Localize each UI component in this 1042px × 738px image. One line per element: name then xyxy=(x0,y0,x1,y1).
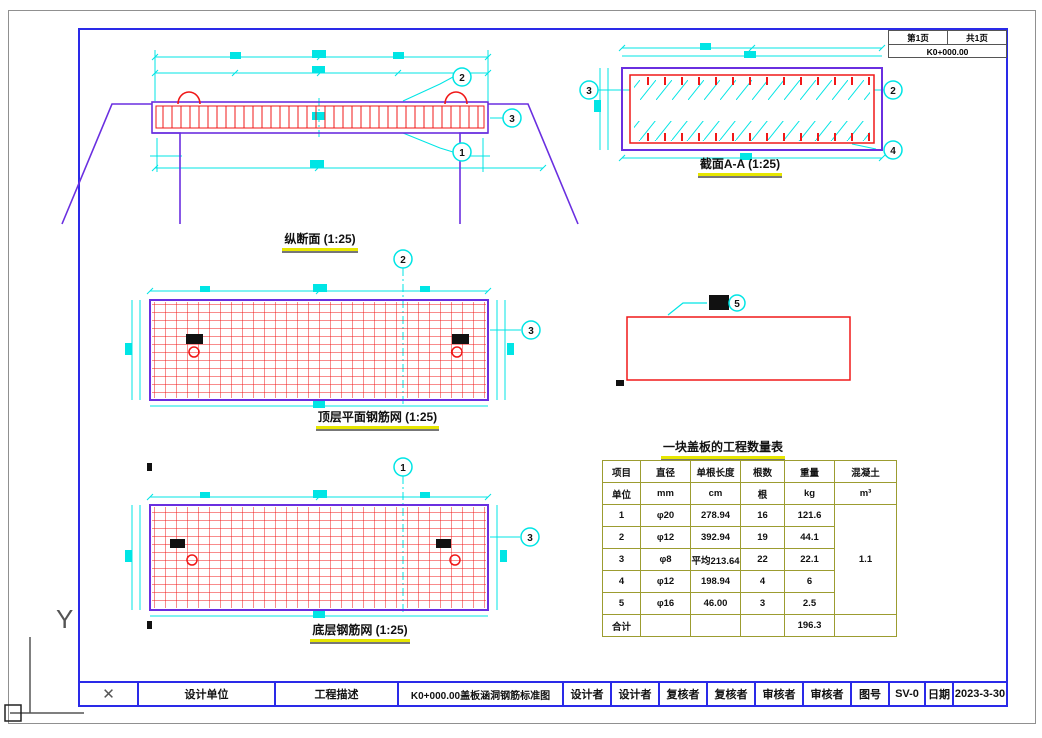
callout-2: 2 xyxy=(884,81,902,99)
qty-table-title: 一块盖板的工程数量表 xyxy=(618,438,828,459)
date-value: 2023-3-30 xyxy=(952,683,1006,705)
table-row: 合计 196.3 xyxy=(603,615,897,637)
table-row: 单位mm cm根 kgm³ xyxy=(603,483,897,505)
drawing-no-value: SV-0 xyxy=(888,683,924,705)
callout-3: 3 xyxy=(522,321,540,339)
section-view: 3 2 4 xyxy=(580,43,902,161)
svg-text:2: 2 xyxy=(459,73,465,84)
design-unit-cell: 设计单位 xyxy=(137,683,274,705)
svg-text:3: 3 xyxy=(528,326,534,337)
svg-text:2: 2 xyxy=(890,86,896,97)
title-bar: ✕ 设计单位 工程描述 K0+000.00盖板涵洞钢筋标准图 设计者 设计者 复… xyxy=(78,681,1008,707)
designer-label: 设计者 xyxy=(562,683,610,705)
bottom-mesh-view: 1 3 xyxy=(125,458,539,629)
page-no: 第1页 xyxy=(889,31,948,44)
callout-2: 2 xyxy=(453,68,471,86)
project-desc-cell: 工程描述 xyxy=(274,683,397,705)
page-number-box: 第1页 共1页 K0+000.00 xyxy=(888,30,1007,58)
longitudinal-view: 2 3 1 xyxy=(62,50,578,224)
slab-outline-view: 5 xyxy=(616,295,850,386)
station-label: K0+000.00 xyxy=(889,45,1006,58)
designer-value: 设计者 xyxy=(610,683,658,705)
rebar-mark-glyph xyxy=(709,295,729,310)
checker-label: 复核者 xyxy=(658,683,706,705)
callout-2: 2 xyxy=(394,250,412,268)
cad-sheet: Y xyxy=(0,0,1042,738)
svg-text:4: 4 xyxy=(890,146,896,157)
callout-3: 3 xyxy=(580,81,598,99)
caption-bottom-mesh: 底层钢筋网 (1:25) xyxy=(280,621,440,642)
svg-text:3: 3 xyxy=(586,86,592,97)
caption-top-mesh: 顶层平面钢筋网 (1:25) xyxy=(295,408,460,429)
svg-text:3: 3 xyxy=(509,114,515,125)
quantity-table: 项目直径 单根长度根数 重量混凝土 单位mm cm根 kgm³ 1φ20 278… xyxy=(602,460,897,637)
table-row: 项目直径 单根长度根数 重量混凝土 xyxy=(603,461,897,483)
svg-text:1: 1 xyxy=(400,463,406,474)
svg-text:1: 1 xyxy=(459,148,465,159)
table-row: 1φ20 278.9416 121.6 1.1 xyxy=(603,505,897,527)
callout-1: 1 xyxy=(394,458,412,476)
svg-text:5: 5 xyxy=(734,299,740,310)
drawing-title-cell: K0+000.00盖板涵洞钢筋标准图 xyxy=(397,683,562,705)
callout-5: 5 xyxy=(729,295,745,311)
callout-4: 4 xyxy=(884,141,902,159)
svg-text:2: 2 xyxy=(400,255,406,266)
drawing-no-label: 图号 xyxy=(850,683,888,705)
ucs-icon: Y xyxy=(5,604,84,721)
callout-3: 3 xyxy=(503,109,521,127)
caption-section: 截面A-A (1:25) xyxy=(660,155,820,176)
reviewer-value: 审核者 xyxy=(802,683,850,705)
ucs-y-label: Y xyxy=(56,604,73,634)
svg-text:3: 3 xyxy=(527,533,533,544)
x-mark-icon: ✕ xyxy=(102,685,115,703)
caption-longitudinal: 纵断面 (1:25) xyxy=(240,230,400,251)
top-mesh-view: 2 3 xyxy=(125,250,540,408)
total-pages: 共1页 xyxy=(948,31,1006,44)
callout-1: 1 xyxy=(453,143,471,161)
logo-cell: ✕ xyxy=(80,683,137,705)
callout-3: 3 xyxy=(521,528,539,546)
reviewer-label: 审核者 xyxy=(754,683,802,705)
checker-value: 复核者 xyxy=(706,683,754,705)
date-label: 日期 xyxy=(924,683,952,705)
